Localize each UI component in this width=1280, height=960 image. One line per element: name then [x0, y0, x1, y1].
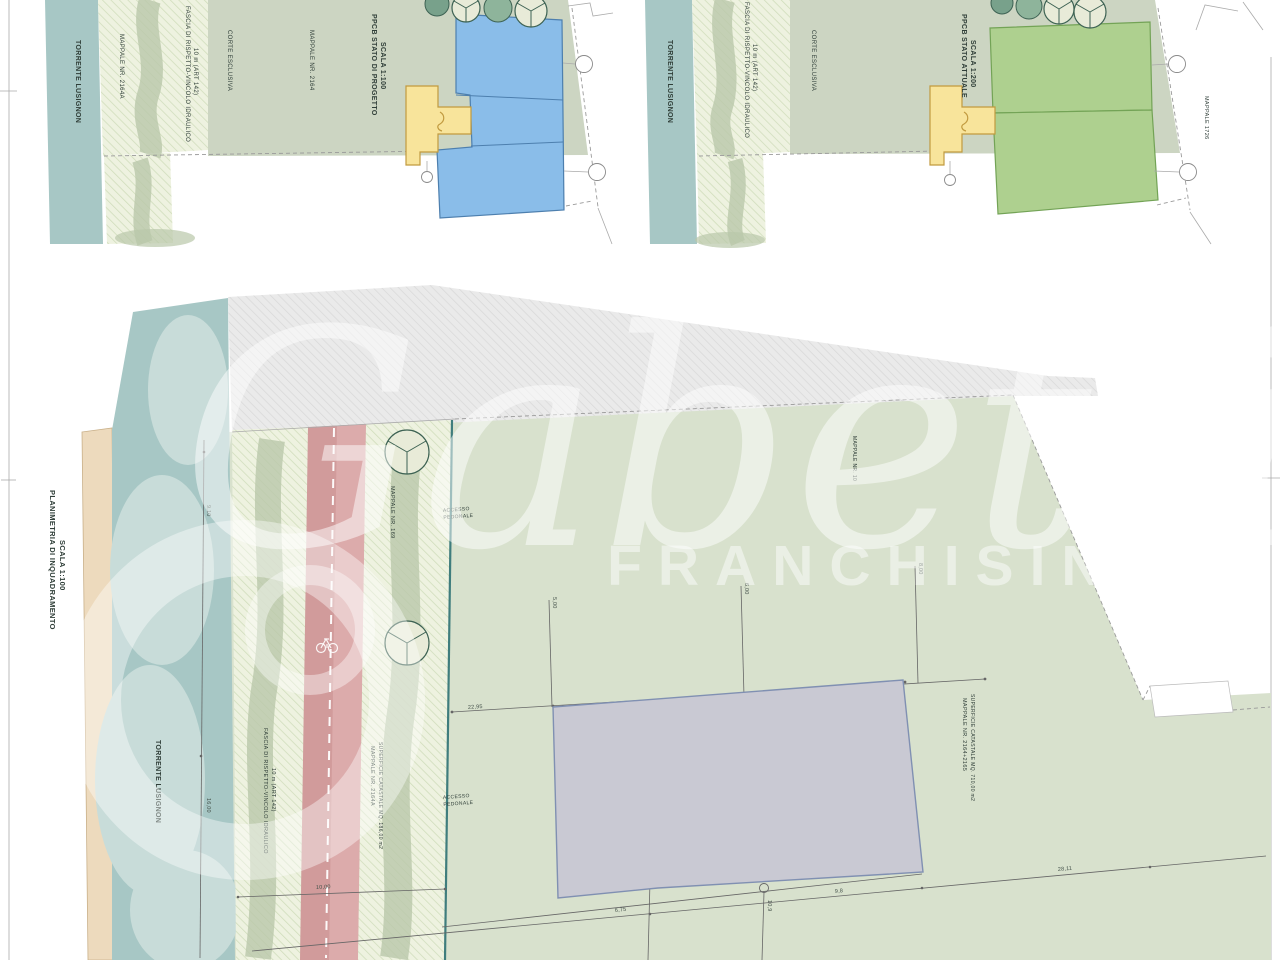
panel-scale: SCALA 1:100	[379, 42, 386, 90]
property-line-dashed	[566, 201, 592, 206]
property-line-dashed	[1157, 198, 1186, 205]
dimension-label: 10,9	[766, 900, 772, 912]
pedestrian-access-label: ACCESSO PEDONALE	[443, 793, 474, 808]
boundary-marker	[1180, 164, 1197, 181]
flood-band	[692, 0, 790, 156]
boundary-marker	[589, 164, 606, 181]
neighbor-outline	[1190, 212, 1211, 244]
neighbor-outline	[598, 208, 612, 244]
marker-leader	[564, 171, 588, 172]
dimension-label: 9,8	[835, 888, 844, 895]
parcel-label: MAPPALE 1726	[1203, 96, 1209, 140]
dimension-label: 22,95	[468, 704, 483, 711]
neighbor-outline	[1196, 5, 1238, 30]
river-label: TORRENTE LUSIGNON	[74, 40, 81, 123]
vegetation-blob	[720, 0, 726, 156]
panel-scale: SCALA 1:200	[969, 40, 976, 88]
dimension-label: 6,75	[615, 907, 627, 914]
dimension-label: 28,11	[1058, 866, 1073, 873]
page-title: PLANIMETRIA DI INQUADRAMENTO	[48, 490, 57, 630]
courtyard-label: CORTE ESCLUSIVA	[226, 30, 232, 91]
boundary-marker	[1169, 56, 1186, 73]
site-plan-sheet: TORRENTE LUSIGNON MAPPALE NR. 2164A FASC…	[0, 0, 1280, 960]
panel-title: PPCB STATO DI PROGETTO	[370, 14, 377, 116]
reference-marker	[945, 175, 956, 186]
cadastral-parcel-building	[553, 680, 923, 898]
flood-band-label-2: 10 m (ART 142)	[751, 44, 757, 91]
river-strip	[45, 0, 103, 244]
parcel-label: MAPPALE NR. 2164+2165	[961, 698, 967, 771]
vegetation-blob	[115, 229, 195, 247]
boundary-marker	[576, 56, 593, 73]
vegetation-blob	[735, 160, 739, 243]
reference-marker	[422, 172, 433, 183]
panel-project: TORRENTE LUSIGNON MAPPALE NR. 2164A FASC…	[45, 0, 613, 247]
flood-band-label: FASCIA DI RISPETTO-VINCOLO IDRAULICO	[184, 6, 190, 142]
neighbor-outline	[568, 3, 613, 16]
boundary-notch	[1150, 681, 1233, 717]
page-scale: SCALA 1:100	[58, 540, 67, 591]
parcel-label: MAPPALE NR. 2164	[308, 30, 314, 91]
parcel-area-label: SUPERFICIE CATASTALE MQ. 710,00 m2	[969, 694, 975, 801]
flood-band-label-2: 10 m (ART 142)	[270, 768, 276, 812]
corner-cut-line	[1243, 2, 1263, 30]
parcel-east-boundary-dashed	[1143, 686, 1150, 700]
plan-drawing: TORRENTE LUSIGNON MAPPALE NR. 2164A FASC…	[0, 0, 1280, 960]
flood-band-label: FASCIA DI RISPETTO-VINCOLO IDRAULICO	[743, 2, 749, 138]
river-label: TORRENTE LUSIGNON	[666, 40, 673, 123]
dimension-label: 10,00	[316, 884, 331, 891]
current-parcel-green	[990, 22, 1152, 113]
current-parcel-green	[993, 110, 1158, 214]
courtyard-label: CORTE ESCLUSIVA	[810, 30, 816, 91]
panel-title: PPCB STATO ATTUALE	[960, 14, 967, 98]
panel-attuale: TORRENTE LUSIGNON FASCIA DI RISPETTO-VIN…	[645, 0, 1238, 248]
dimension-label: 16,00	[205, 798, 211, 813]
vegetation-blob	[695, 232, 765, 248]
vegetation-blob	[146, 0, 152, 155]
flood-band-label-2: 10 m (ART 142)	[192, 48, 198, 95]
watermark-subtitle: FRANCHISING	[607, 534, 1179, 598]
marker-leader	[1154, 171, 1179, 172]
parcel-label: MAPPALE NR. 2164A	[118, 34, 124, 99]
